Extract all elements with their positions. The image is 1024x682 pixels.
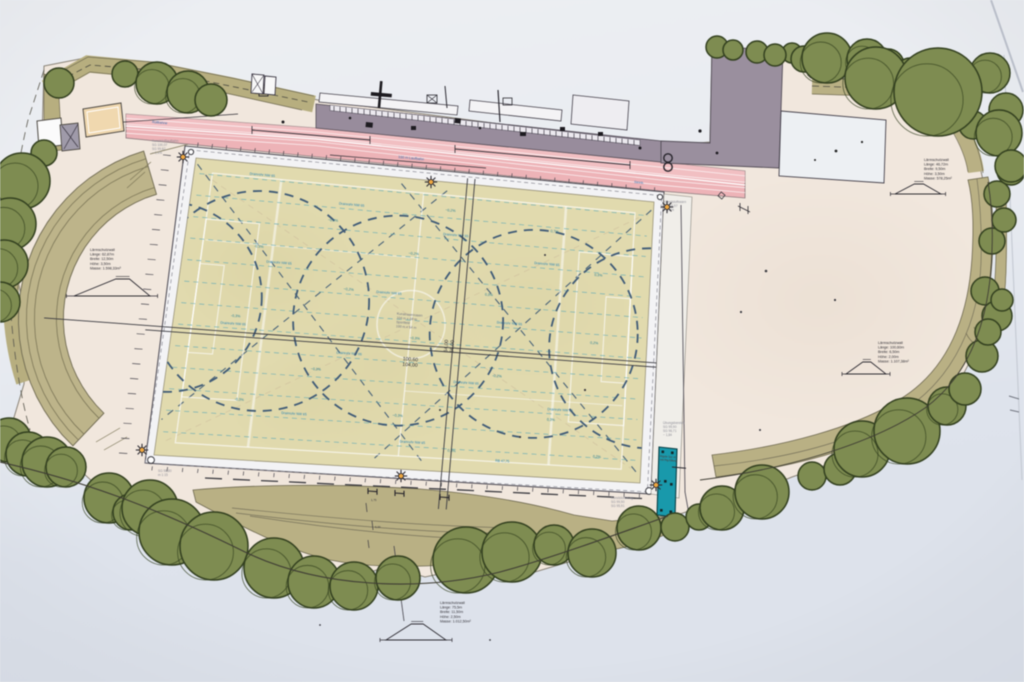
svg-text:0,2%: 0,2% [593,455,602,460]
svg-text:0,3%: 0,3% [547,418,556,423]
svg-text:Lärmschutzwall: Lärmschutzwall [90,248,115,252]
svg-text:-0,3%: -0,3% [234,397,244,402]
svg-text:6,00: 6,00 [375,525,381,529]
svg-text:-0,3%: -0,3% [254,244,264,249]
svg-text:Höhe: 3,50m: Höhe: 3,50m [90,262,111,266]
svg-text:Länge: 62,87m: Länge: 62,87m [90,253,114,257]
svg-text:Masse: 1.012,50m²: Masse: 1.012,50m² [440,619,472,623]
svg-text:-0,2%: -0,2% [492,374,502,379]
svg-text:Lärmschutzwall: Lärmschutzwall [440,601,465,605]
svg-text:0,2%: 0,2% [590,341,599,346]
svg-text:Lärmschutzwall: Lärmschutzwall [924,158,949,162]
svg-text:SG 95,91: SG 95,91 [611,504,625,508]
svg-text:~0,3%: ~0,3% [392,413,403,418]
svg-text:Masse: 578,25m²: Masse: 578,25m² [924,176,953,180]
svg-text:-0,3%: -0,3% [231,314,241,319]
svg-text:Breite: 9,50m: Breite: 9,50m [924,167,945,171]
svg-text:0,3%: 0,3% [447,449,456,454]
svg-text:104,00: 104,00 [402,362,418,369]
svg-text:RB 47,75: RB 47,75 [495,459,509,464]
svg-text:Höhe: 2,50m: Höhe: 2,50m [440,615,461,619]
svg-text:Länge: 100,60m: Länge: 100,60m [878,346,904,350]
svg-text:Breite: 12,50m: Breite: 12,50m [90,257,113,261]
svg-text:Höhe: 2,00m: Höhe: 2,00m [878,355,899,359]
svg-text:0,3%: 0,3% [485,293,494,298]
svg-text:0,3%: 0,3% [594,273,603,278]
svg-text:~0,3%: ~0,3% [311,367,322,372]
svg-text:Breite: 11,50m: Breite: 11,50m [440,610,463,614]
svg-text:Masse: 1.107,38m²: Masse: 1.107,38m² [878,359,910,363]
svg-text:0,7%: 0,7% [550,229,559,234]
svg-text:66,00: 66,00 [449,340,456,353]
svg-text:~0,3%: ~0,3% [410,336,421,341]
svg-text:~ 1,84: ~ 1,84 [663,433,672,437]
svg-text:~ 0,4%: ~ 0,4% [152,151,162,155]
svg-text:Lärmschutzwall: Lärmschutzwall [878,341,903,345]
svg-text:Masse: 1.598,33m³: Masse: 1.598,33m³ [90,266,122,270]
svg-text:Breite: 6,50m: Breite: 6,50m [878,350,899,354]
svg-text:Länge: 75,5m: Länge: 75,5m [440,606,462,610]
svg-text:Länge: 46,72m: Länge: 46,72m [924,163,948,167]
svg-text:1,75: 1,75 [371,498,377,502]
svg-text:m 1:15: m 1:15 [158,473,168,477]
svg-text:Höhe: 3,50m: Höhe: 3,50m [924,172,945,176]
